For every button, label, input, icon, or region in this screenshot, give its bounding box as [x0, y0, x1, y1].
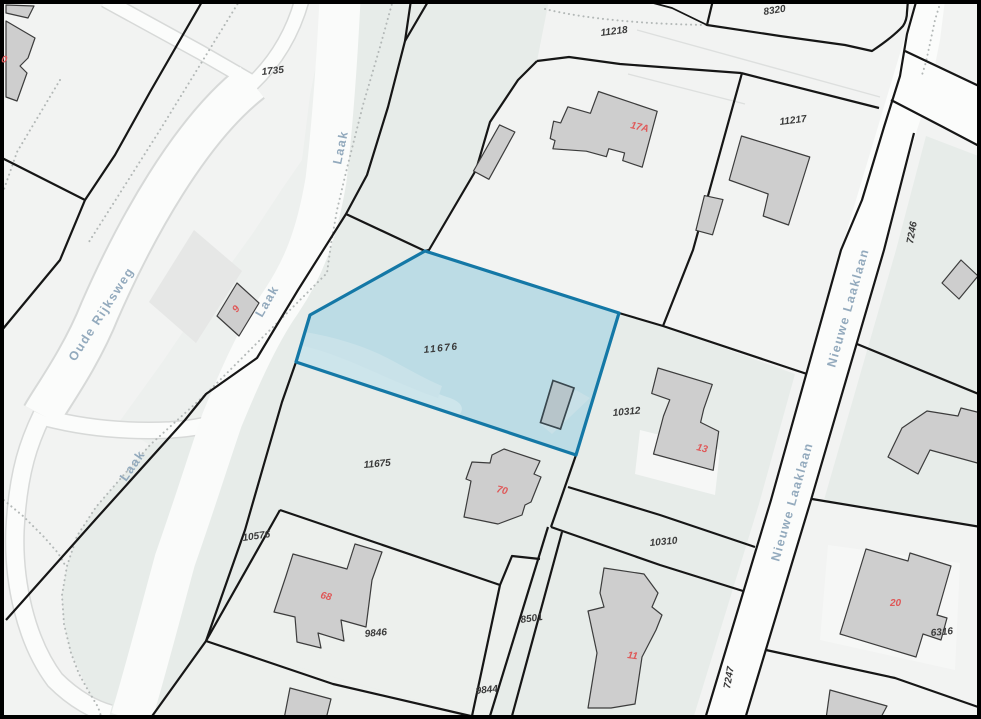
svg-text:20: 20 [889, 598, 902, 609]
svg-text:11: 11 [627, 650, 639, 662]
svg-text:6316: 6316 [930, 626, 954, 639]
svg-text:9846: 9846 [364, 627, 388, 640]
